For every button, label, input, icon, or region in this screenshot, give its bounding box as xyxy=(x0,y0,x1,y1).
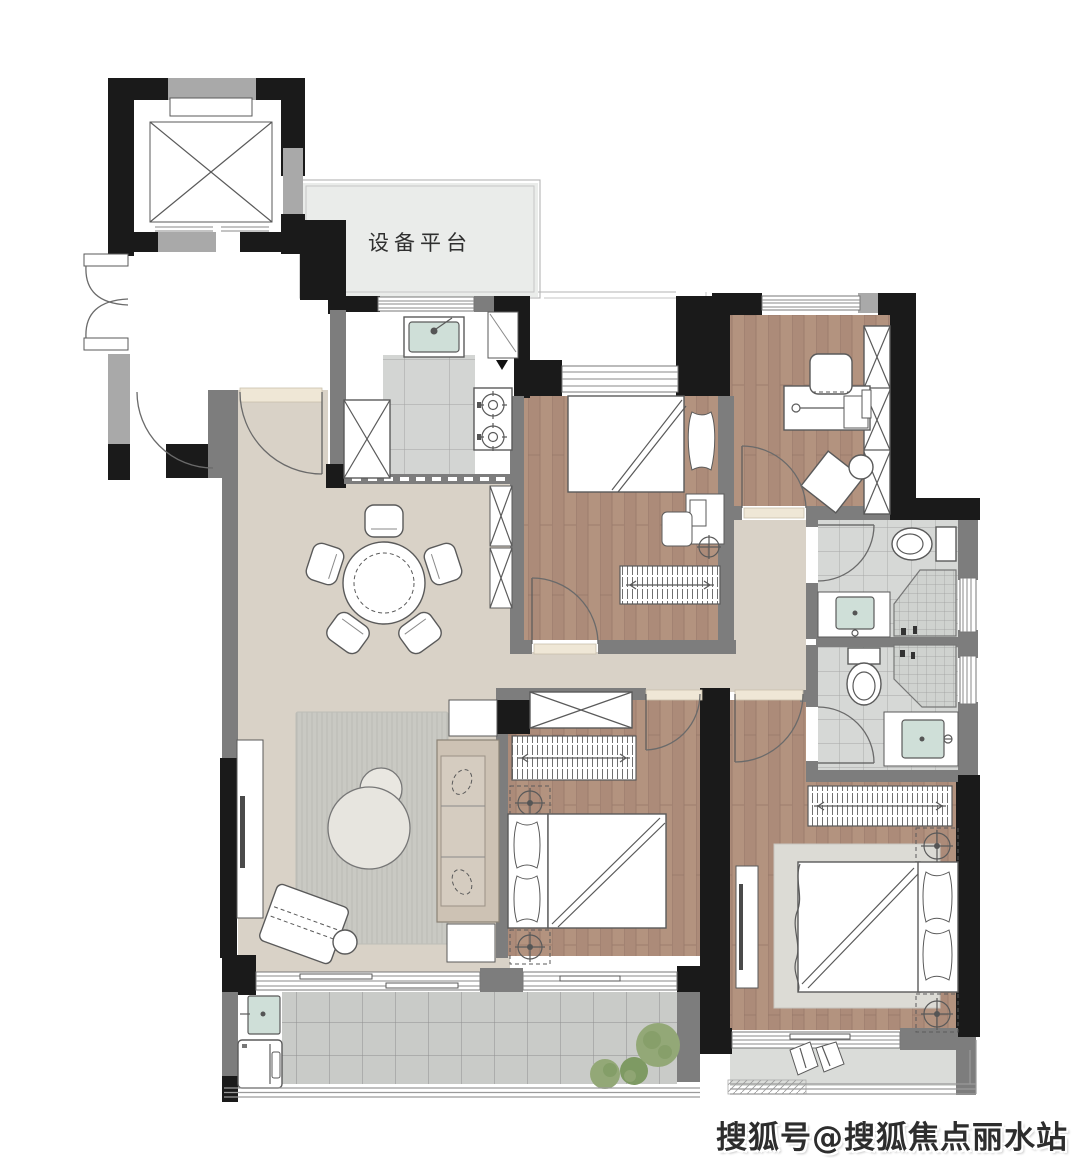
washing-machine-icon xyxy=(238,1040,282,1088)
step-hatch xyxy=(728,1080,806,1094)
kitchen-window-icon xyxy=(378,297,474,311)
stool-icon xyxy=(849,455,873,479)
tv-cabinet-icon xyxy=(237,740,263,918)
striped-dresser-icon xyxy=(808,786,952,826)
vanity-basin-icon xyxy=(818,592,890,637)
wardrobe-x-icon xyxy=(530,692,632,728)
bedroom-middle-balcony-door-icon xyxy=(523,972,677,990)
pillow-icon xyxy=(514,876,540,922)
dining-chair-icon xyxy=(365,505,403,537)
side-table-icon xyxy=(449,700,497,736)
pillow-icon xyxy=(688,412,715,470)
floorplan-drawing xyxy=(0,0,1080,1158)
equipment-platform-label: 设备平台 xyxy=(330,227,510,257)
round-dining-table-icon xyxy=(343,542,425,624)
striped-dresser-icon xyxy=(512,736,636,780)
tv-cabinet-icon xyxy=(736,866,758,988)
bedroom-top-window-icon xyxy=(562,366,678,392)
fridge-x-icon xyxy=(344,400,390,478)
elevator xyxy=(150,98,272,231)
cabinet-icon xyxy=(488,312,518,370)
pillow-icon xyxy=(514,822,540,868)
study-window-icon xyxy=(762,296,860,310)
watermark-text: 搜狐号@搜狐焦点丽水站 xyxy=(716,1112,1068,1157)
striped-dresser-icon xyxy=(620,566,720,604)
kitchen-sink-icon xyxy=(404,317,464,357)
double-bed-icon xyxy=(795,862,958,992)
master-balcony-door-icon xyxy=(732,1032,900,1048)
stove-icon xyxy=(474,388,512,451)
bath-upper-window-icon xyxy=(960,578,976,632)
footstool-icon xyxy=(333,930,357,954)
living-balcony-door-icon xyxy=(256,972,480,990)
toilet-icon xyxy=(892,527,956,561)
bath-lower-window-icon xyxy=(960,656,976,704)
double-bed-icon xyxy=(508,814,666,928)
toilet-icon xyxy=(847,648,881,705)
elevator-x-icon xyxy=(150,122,272,222)
floorplan-image: 设备平台 搜狐号@搜狐焦点丽水站 xyxy=(0,0,1080,1158)
double-door-icon xyxy=(84,254,128,350)
vanity-basin-icon xyxy=(884,712,958,766)
pillow-icon xyxy=(923,872,952,922)
sofa-icon xyxy=(437,740,499,922)
side-table-icon xyxy=(447,924,495,962)
desk-chair-icon xyxy=(810,354,852,394)
desk-chair-icon xyxy=(662,512,692,546)
pillow-icon xyxy=(923,930,952,980)
